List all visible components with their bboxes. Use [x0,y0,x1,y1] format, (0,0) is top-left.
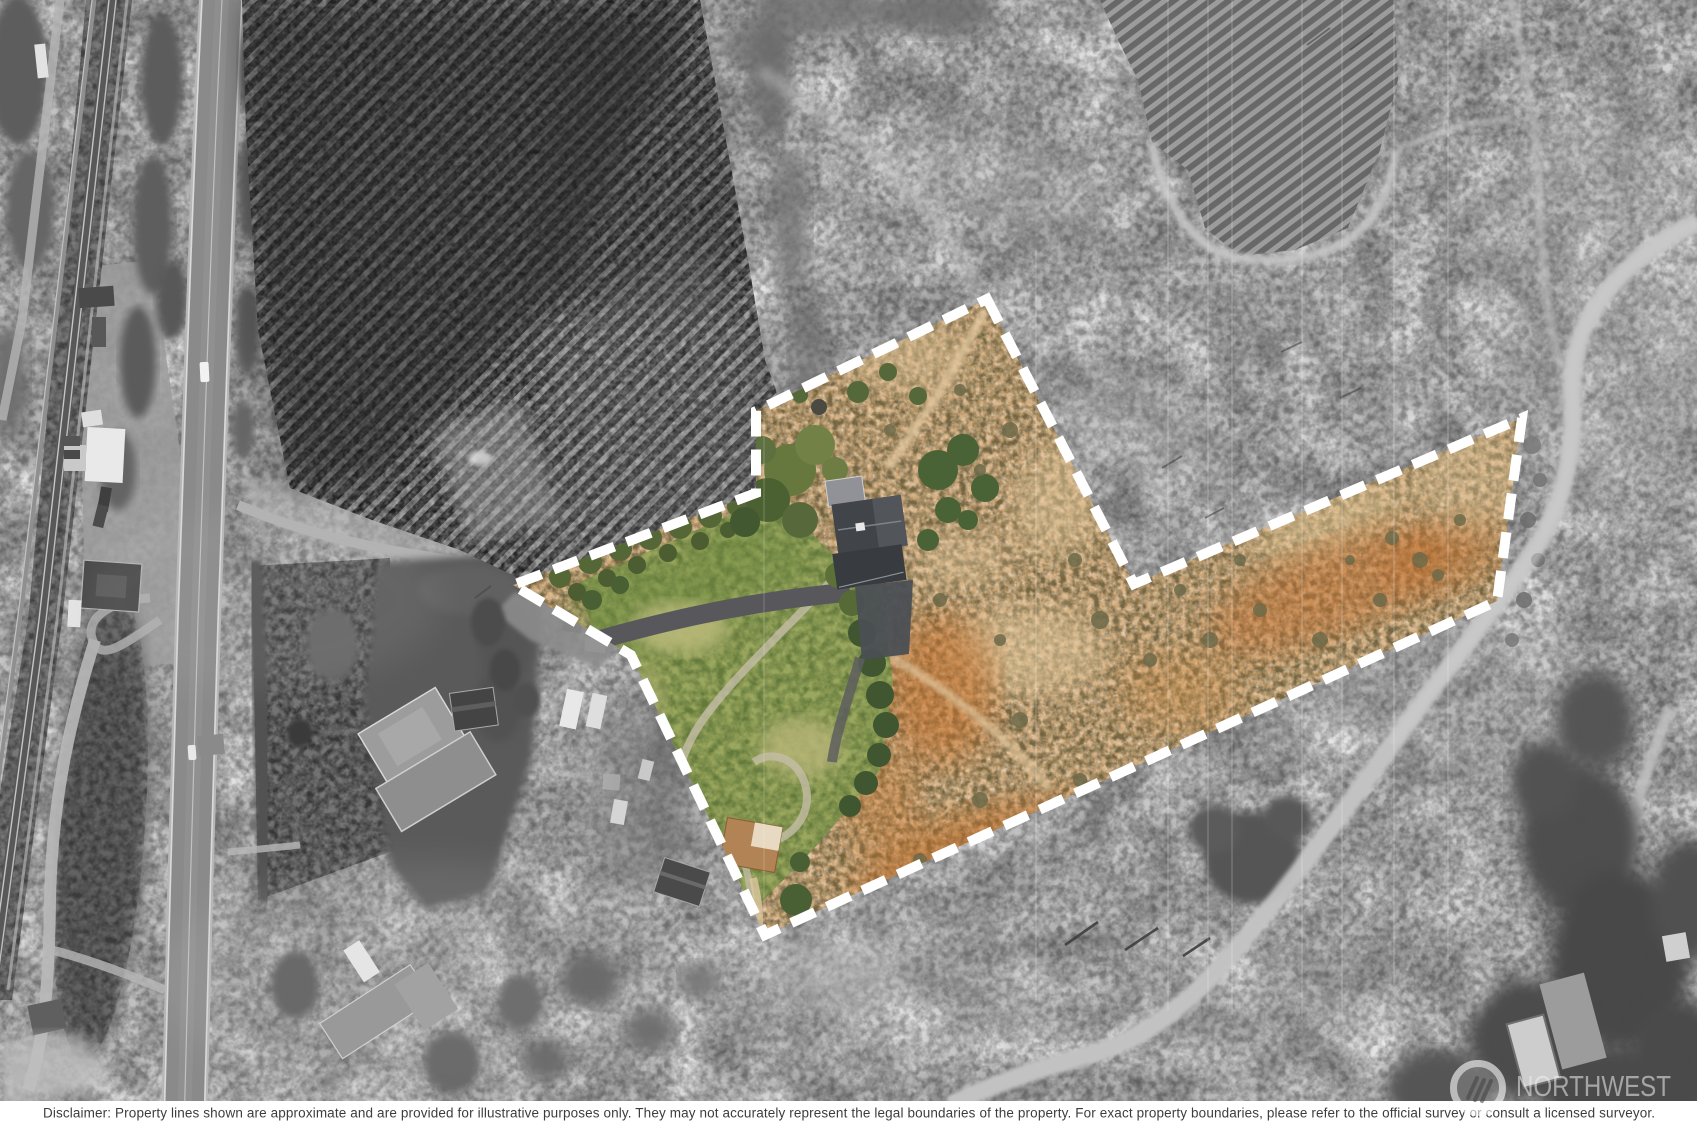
svg-text:NORTHWEST: NORTHWEST [1516,1071,1671,1103]
svg-text:Disclaimer: Property lines sho: Disclaimer: Property lines shown are app… [43,1106,1655,1121]
